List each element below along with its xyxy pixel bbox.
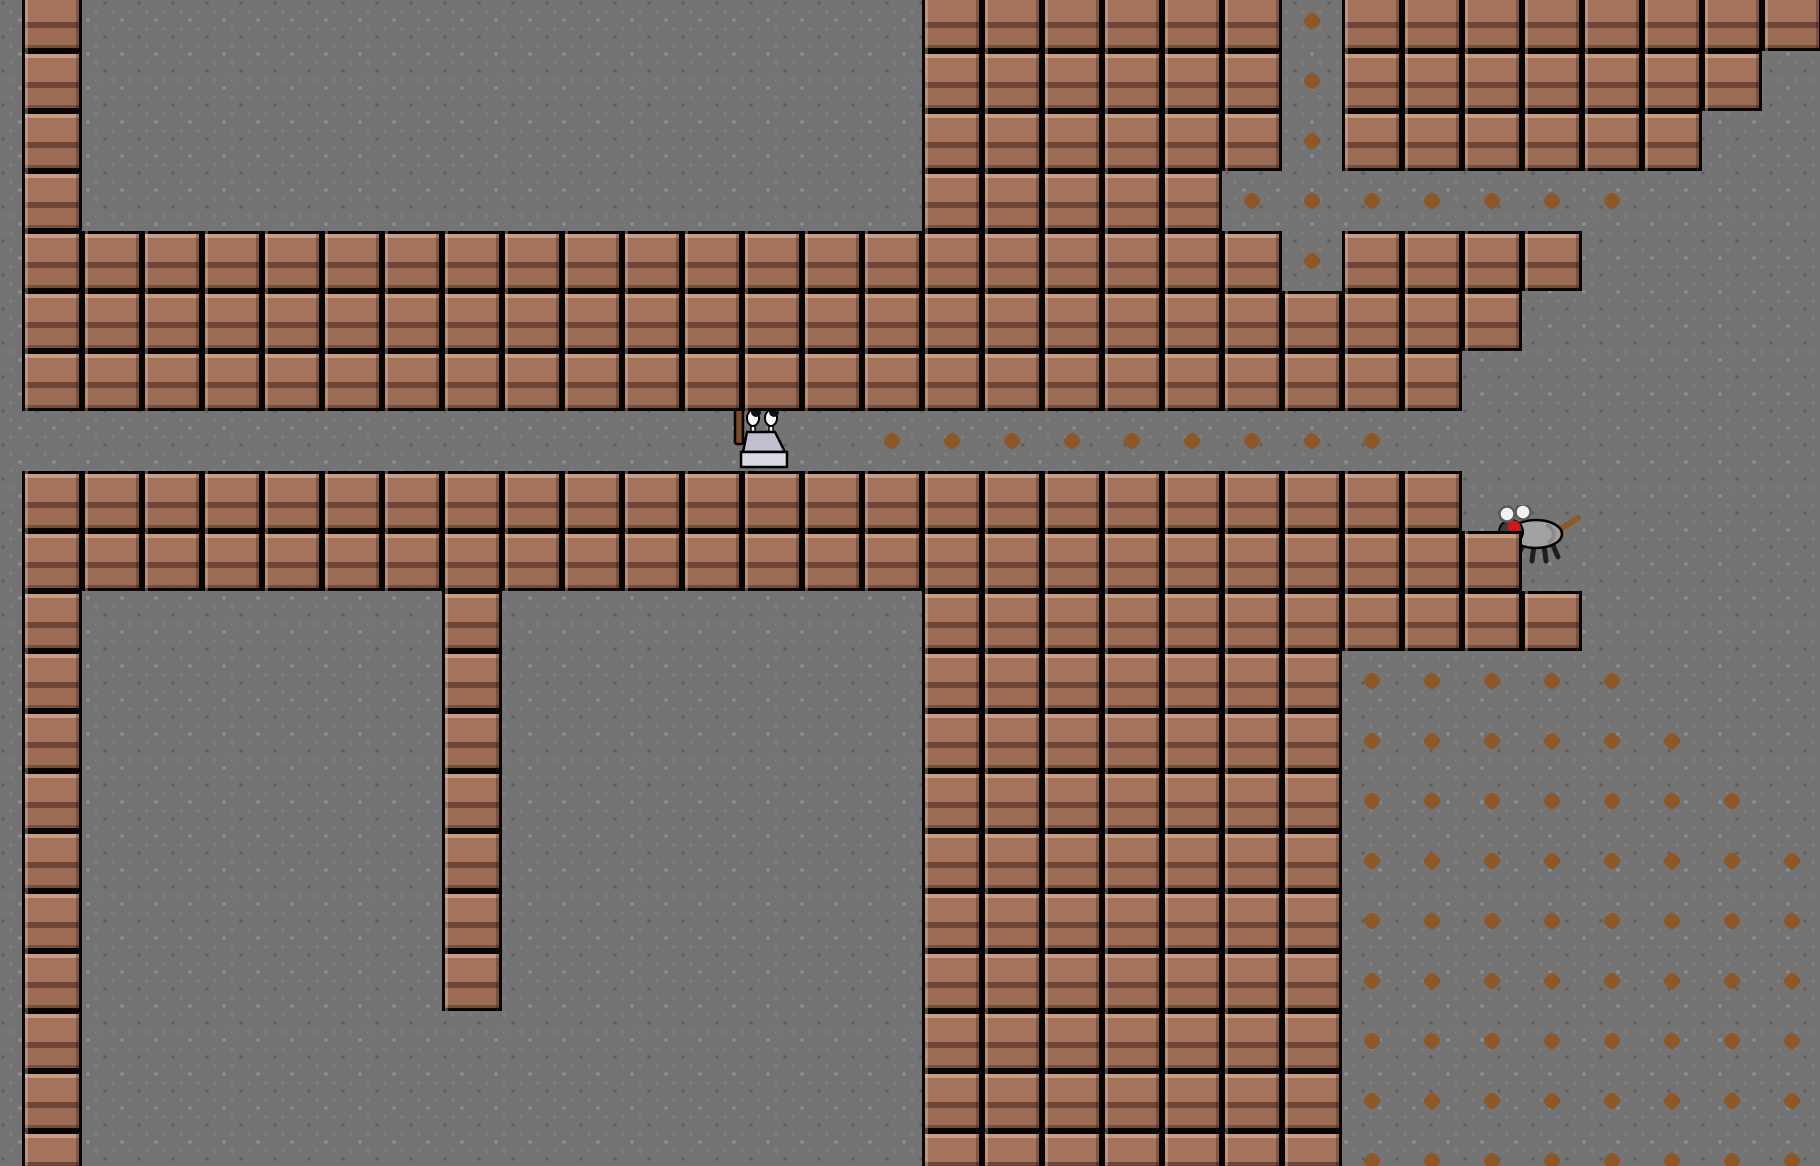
dirt-pellet: [1304, 133, 1320, 149]
dirt-pellet: [1364, 1093, 1380, 1109]
dirt-pellet: [1424, 1093, 1440, 1109]
dirt-pellet: [1364, 1033, 1380, 1049]
dirt-pellet: [1724, 1093, 1740, 1109]
player-base: [741, 452, 787, 467]
dirt-pellet: [1784, 1093, 1800, 1109]
dirt-pellet: [1304, 433, 1320, 449]
dirt-pellet: [1424, 1153, 1440, 1166]
brick-wall-span: [442, 771, 502, 831]
brick-wall-span: [442, 651, 502, 711]
brick-wall-span: [442, 711, 502, 771]
dirt-pellet: [1724, 793, 1740, 809]
dirt-pellet: [1604, 1153, 1620, 1166]
dirt-pellet: [1544, 793, 1560, 809]
dirt-pellet: [1544, 913, 1560, 929]
brick-wall-span: [922, 711, 1342, 771]
brick-wall-span: [22, 1011, 82, 1071]
brick-wall-span: [442, 831, 502, 891]
brick-wall-span: [22, 891, 82, 951]
dirt-pellet: [1784, 1033, 1800, 1049]
dirt-pellet: [1004, 433, 1020, 449]
dirt-pellet: [1484, 193, 1500, 209]
dirt-pellet: [1724, 973, 1740, 989]
dirt-pellet: [1604, 193, 1620, 209]
dirt-pellet: [1604, 853, 1620, 869]
dirt-pellet: [1784, 1153, 1800, 1166]
dirt-pellet: [1484, 793, 1500, 809]
dirt-pellet: [1304, 73, 1320, 89]
dirt-pellet: [1424, 973, 1440, 989]
dirt-pellet: [1364, 913, 1380, 929]
dirt-pellet: [1364, 1153, 1380, 1166]
brick-wall-span: [22, 291, 1522, 351]
dirt-pellet: [1424, 193, 1440, 209]
brick-wall-span: [922, 651, 1342, 711]
brick-wall-span: [22, 651, 82, 711]
dirt-pellet: [1064, 433, 1080, 449]
brick-wall-span: [22, 111, 82, 171]
brick-wall-span: [922, 1011, 1342, 1071]
dirt-pellet: [1544, 853, 1560, 869]
player-stick: [735, 407, 743, 444]
dirt-pellet: [1784, 853, 1800, 869]
dirt-pellet: [1784, 973, 1800, 989]
game-viewport[interactable]: [0, 0, 1820, 1166]
dirt-pellet: [1364, 973, 1380, 989]
dirt-pellet: [1484, 913, 1500, 929]
dirt-pellet: [1544, 673, 1560, 689]
dirt-pellet: [1544, 1093, 1560, 1109]
dirt-pellet: [1364, 853, 1380, 869]
dirt-pellet: [1544, 1033, 1560, 1049]
brick-wall-span: [22, 1071, 82, 1131]
brick-wall-span: [922, 51, 1282, 111]
dirt-pellet: [1664, 1153, 1680, 1166]
brick-wall-span: [922, 0, 1282, 51]
dirt-pellet: [1484, 1033, 1500, 1049]
brick-wall-span: [1342, 111, 1702, 171]
brick-wall-span: [22, 231, 1282, 291]
brick-wall-span: [442, 951, 502, 1011]
dirt-pellet: [1484, 1093, 1500, 1109]
dirt-pellet: [1544, 1153, 1560, 1166]
dirt-pellet: [1724, 913, 1740, 929]
dirt-pellet: [1604, 673, 1620, 689]
dirt-pellet: [1604, 973, 1620, 989]
brick-wall-span: [922, 171, 1222, 231]
brick-wall-span: [22, 831, 82, 891]
dirt-pellet: [1664, 1033, 1680, 1049]
dirt-pellet: [1304, 193, 1320, 209]
brick-wall-span: [442, 591, 502, 651]
dirt-pellet: [1664, 913, 1680, 929]
brick-wall-span: [22, 771, 82, 831]
brick-wall-span: [1342, 51, 1762, 111]
rat-ear-right: [1516, 505, 1531, 520]
dirt-pellet: [1604, 913, 1620, 929]
dirt-pellet: [1124, 433, 1140, 449]
dirt-pellet: [1664, 853, 1680, 869]
brick-wall-span: [922, 591, 1582, 651]
dirt-pellet: [1604, 1093, 1620, 1109]
dirt-pellet: [1604, 733, 1620, 749]
dirt-pellet: [1664, 973, 1680, 989]
dirt-pellet: [884, 433, 900, 449]
dirt-pellet: [1424, 793, 1440, 809]
dirt-pellet: [1424, 673, 1440, 689]
dirt-pellet: [1304, 13, 1320, 29]
dirt-pellet: [1604, 1033, 1620, 1049]
brick-wall-span: [22, 1131, 82, 1166]
brick-wall-span: [922, 831, 1342, 891]
dirt-pellet: [1544, 193, 1560, 209]
dirt-pellet: [1724, 853, 1740, 869]
dirt-pellet: [1424, 1033, 1440, 1049]
dirt-pellet: [1484, 733, 1500, 749]
brick-wall-span: [22, 171, 82, 231]
brick-wall-span: [922, 111, 1282, 171]
dirt-pellet: [1484, 853, 1500, 869]
dirt-pellet: [1424, 853, 1440, 869]
dirt-pellet: [1664, 733, 1680, 749]
dirt-pellet: [1664, 793, 1680, 809]
rat-ear-left: [1500, 507, 1515, 522]
brick-wall-span: [922, 951, 1342, 1011]
brick-wall-span: [922, 771, 1342, 831]
brick-wall-span: [22, 351, 1462, 411]
player-body: [743, 432, 785, 452]
brick-wall-span: [22, 591, 82, 651]
brick-wall-span: [22, 51, 82, 111]
dirt-pellet: [1724, 1153, 1740, 1166]
dirt-pellet: [1784, 913, 1800, 929]
brick-wall-span: [22, 0, 82, 51]
dirt-pellet: [1304, 253, 1320, 269]
dirt-pellet: [1364, 733, 1380, 749]
brick-wall-span: [922, 1071, 1342, 1131]
brick-wall-span: [22, 951, 82, 1011]
dirt-pellet: [1484, 673, 1500, 689]
dirt-pellet: [1364, 433, 1380, 449]
brick-wall-span: [922, 891, 1342, 951]
dirt-pellet: [1364, 673, 1380, 689]
dirt-pellet: [1184, 433, 1200, 449]
dirt-pellet: [1244, 193, 1260, 209]
dirt-pellet: [1544, 973, 1560, 989]
brick-wall-span: [22, 471, 1462, 531]
brick-wall-span: [1342, 0, 1820, 51]
dirt-pellet: [1604, 793, 1620, 809]
dirt-pellet: [1424, 913, 1440, 929]
dirt-pellet: [1244, 433, 1260, 449]
dirt-pellet: [1424, 733, 1440, 749]
brick-wall-span: [442, 891, 502, 951]
dirt-pellet: [1724, 1033, 1740, 1049]
dirt-pellet: [1484, 1153, 1500, 1166]
player-character[interactable]: [733, 404, 797, 470]
dirt-pellet: [1664, 1093, 1680, 1109]
brick-wall-span: [1342, 231, 1582, 291]
dirt-pellet: [944, 433, 960, 449]
dirt-pellet: [1364, 793, 1380, 809]
brick-wall-span: [922, 1131, 1342, 1166]
dirt-pellet: [1544, 733, 1560, 749]
dirt-pellet: [1364, 193, 1380, 209]
brick-wall-span: [22, 531, 1522, 591]
brick-wall-span: [22, 711, 82, 771]
dirt-pellet: [1484, 973, 1500, 989]
